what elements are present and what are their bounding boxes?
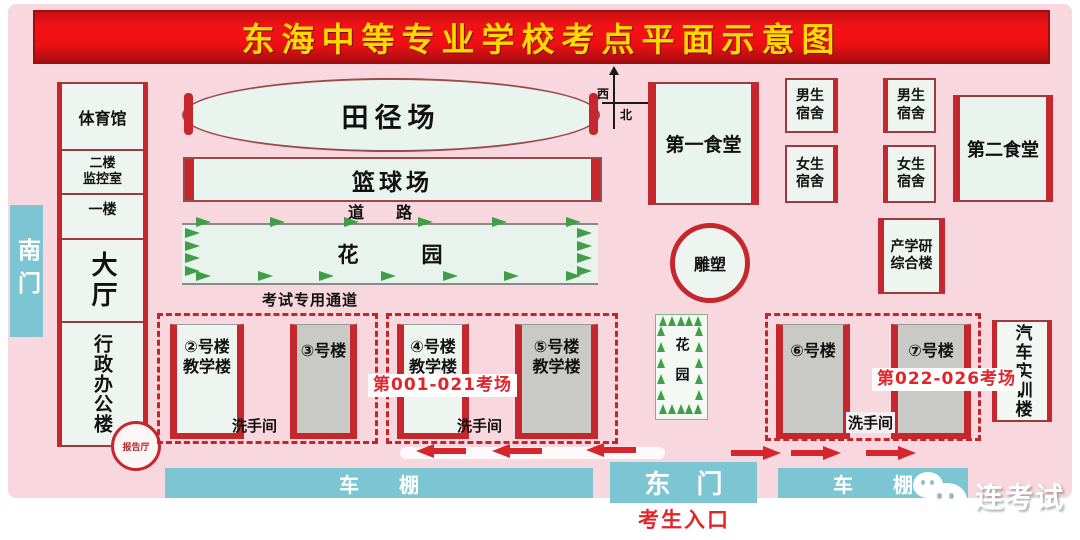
restroom-label: 洗手间 bbox=[457, 415, 502, 436]
compass-axis-horizontal bbox=[602, 102, 648, 104]
male-dorm-1: 男生 宿舍 bbox=[785, 78, 838, 133]
compass-west-label: 西 bbox=[597, 85, 609, 102]
basketball-court: 篮球场 bbox=[183, 157, 602, 202]
monitor-room: 二楼 监控室 bbox=[62, 151, 143, 195]
building-3: ③号楼 bbox=[290, 324, 357, 439]
route-arrow-left-icon bbox=[416, 444, 466, 458]
teaching-group-1: ②号楼 教学楼 ③号楼 洗手间 bbox=[157, 313, 378, 444]
wechat-eye-icon bbox=[949, 493, 954, 499]
wechat-eye-icon bbox=[937, 493, 942, 499]
compass-north-label: 北 bbox=[620, 106, 632, 123]
canteen-2: 第二食堂 bbox=[953, 95, 1053, 202]
track-field: 田径场 bbox=[182, 78, 600, 152]
gymnasium: 体育馆 bbox=[62, 84, 143, 151]
report-hall: 报告厅 bbox=[111, 421, 161, 471]
watermark-text: 连考试 bbox=[975, 476, 1065, 516]
watermark: 连考试 bbox=[905, 450, 1080, 525]
wechat-eye-icon bbox=[921, 480, 925, 485]
canteen-1: 第一食堂 bbox=[648, 82, 759, 205]
title-banner: 东海中等专业学校考点平面示意图 bbox=[33, 10, 1050, 64]
complex-building: 产学研 综合楼 bbox=[878, 218, 945, 294]
vertical-garden: 花园 bbox=[655, 314, 708, 420]
route-arrow-left-icon bbox=[492, 444, 542, 458]
page-title: 东海中等专业学校考点平面示意图 bbox=[242, 13, 842, 61]
wechat-eye-icon bbox=[930, 480, 934, 485]
exam-passage-label: 考试专用通道 bbox=[262, 289, 358, 310]
compass-arrow-up-icon bbox=[609, 66, 619, 75]
lobby: 大厅 bbox=[62, 240, 143, 323]
restroom-label: 洗手间 bbox=[846, 412, 895, 433]
candidate-entrance-label: 考生入口 bbox=[638, 504, 730, 534]
bike-shed-left: 车 棚 bbox=[165, 468, 593, 498]
wechat-icon bbox=[927, 483, 967, 517]
exam-rooms-001-021-label: 第001-021考场 bbox=[368, 374, 517, 397]
first-floor: 一楼 bbox=[62, 195, 143, 240]
admin-building-column: 体育馆 二楼 监控室 一楼 大厅 行政办公楼 bbox=[57, 82, 148, 447]
compass: 西 北 bbox=[596, 69, 656, 135]
exam-rooms-022-026-label: 第022-026考场 bbox=[872, 368, 1021, 391]
route-arrow-left-icon bbox=[586, 443, 636, 457]
route-arrow-right-icon bbox=[791, 446, 841, 460]
male-dorm-2: 男生 宿舍 bbox=[883, 78, 936, 133]
south-gate: 南门 bbox=[10, 205, 43, 337]
exam-site-map: 东海中等专业学校考点平面示意图 体育馆 二楼 监控室 一楼 大厅 行政办公楼 报… bbox=[0, 0, 1080, 540]
building-5: ⑤号楼 教学楼 bbox=[515, 324, 598, 439]
east-gate: 东 门 bbox=[610, 462, 757, 503]
sculpture: 雕塑 bbox=[670, 223, 750, 303]
female-dorm-1: 女生 宿舍 bbox=[785, 145, 838, 203]
garden-strip: 花 园 bbox=[182, 223, 598, 285]
restroom-label: 洗手间 bbox=[232, 415, 277, 436]
route-arrow-right-icon bbox=[731, 446, 781, 460]
female-dorm-2: 女生 宿舍 bbox=[883, 145, 936, 203]
building-6: ⑥号楼 bbox=[776, 324, 850, 439]
road-label: 道 路 bbox=[300, 199, 460, 223]
